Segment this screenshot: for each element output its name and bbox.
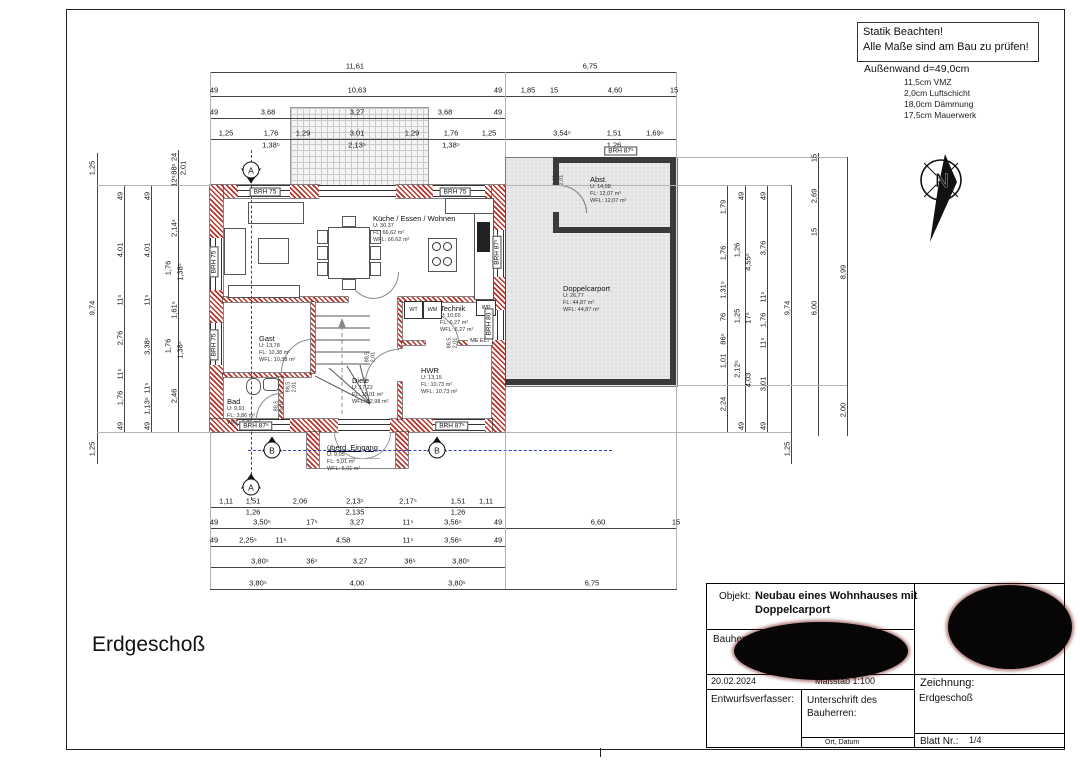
room-stat: WFL: 6,27 m² [440, 327, 473, 334]
dimension-label: 2,135 [346, 508, 365, 517]
dimension-label: 12⁵ [170, 175, 179, 186]
chair [317, 262, 328, 276]
dining-table [328, 227, 370, 279]
chair [317, 246, 328, 260]
dim-line [97, 153, 98, 464]
door-size-label: 1,012,01 [553, 175, 566, 186]
dimension-label: 49 [737, 422, 746, 430]
dimension-label: 1,25 [482, 129, 497, 138]
ext-line [505, 432, 506, 589]
room-label-überd-eingang: überd. EingangU: 9,05FL: 5,01 m²WFL: 5,0… [327, 443, 378, 473]
room-stat: U: 26,77 [563, 293, 610, 300]
cooktop-burner [432, 257, 441, 266]
entry-door-opening [338, 419, 390, 432]
dimension-label: 1,11 [479, 497, 493, 506]
dim-line [727, 185, 728, 432]
dimension-label: 49 [210, 518, 218, 527]
room-label-hwr: HWRU: 13,15FL: 10,73 m²WFL: 10,73 m² [421, 366, 457, 396]
dimension-label: 4,58 [336, 536, 351, 545]
tv-board [228, 285, 300, 298]
chair [342, 279, 356, 290]
dimension-label: 49 [737, 192, 746, 200]
tb-divider [801, 737, 914, 738]
chair [342, 216, 356, 227]
dimension-label: 3,76 [759, 241, 768, 256]
dimension-label: 1,76 [164, 339, 173, 354]
room-stat: FL: 10,38 m² [259, 350, 295, 357]
sofa-left [224, 228, 246, 275]
dimension-label: 11⁵ [403, 536, 414, 545]
dimension-label: 15 [810, 228, 819, 236]
dimension-label: 11⁵ [759, 292, 768, 303]
iwall-gast-bad [223, 373, 311, 377]
dimension-label: 1,29 [405, 129, 420, 138]
wc [246, 378, 261, 395]
dimension-label: 1,51 [607, 129, 622, 138]
dimension-label: 2,25⁵ [239, 536, 257, 545]
dimension-label: 2,01 [179, 161, 188, 176]
dimension-label: 10,63 [348, 86, 367, 95]
dimension-label: 86⁵ [719, 333, 728, 344]
dimension-label: 2,13⁵ [348, 141, 366, 150]
ext-line [676, 157, 847, 158]
tb-divider [801, 689, 802, 747]
dimension-label: 15 [550, 86, 558, 95]
dimension-label: 49 [759, 192, 768, 200]
dimension-label: 4,03 [744, 373, 753, 388]
section-marker-b: B [429, 442, 446, 459]
room-name: Küche / Essen / Wohnen [373, 214, 455, 223]
iwall-diele-hwr-b [398, 382, 402, 419]
chair [317, 230, 328, 244]
dimension-label: 3,50⁵ [253, 518, 271, 527]
dimension-label: 2,12⁵ [733, 360, 742, 378]
dimension-label: 1,26 [733, 243, 742, 258]
dim-line [210, 72, 677, 73]
carport-wall-bottom [505, 379, 676, 385]
sink [263, 378, 279, 391]
dimension-label: 1,61⁵ [170, 301, 179, 319]
dimension-label: 4,55⁵ [744, 253, 753, 271]
dimension-label: 6,75 [583, 62, 598, 71]
ext-line [676, 385, 677, 589]
room-stat: WFL: 5,01 m² [327, 466, 378, 473]
room-name: überd. Eingang [327, 443, 378, 452]
dimension-label: 1,25 [88, 442, 97, 457]
room-name: Diele [352, 376, 388, 385]
room-stat: WFL: 66,62 m² [373, 237, 455, 244]
dimension-label: 8,99 [839, 265, 848, 280]
date-value: 20.02.2024 [711, 676, 756, 686]
brh-label: BRH 75 [210, 330, 219, 361]
dimension-label: 4,01 [143, 243, 152, 258]
dimension-label: 15 [672, 518, 680, 527]
dimension-label: 3,56⁵ [444, 536, 462, 545]
section-marker-a: A [243, 479, 260, 496]
room-label-abst-: Abst.U: 14,08FL: 12,07 m²WFL: 12,07 m² [590, 175, 626, 205]
room-stat: FL: 5,01 m² [327, 459, 378, 466]
brh-label: BRH 75 [210, 247, 219, 278]
dimension-label: 6,75 [585, 579, 600, 588]
dimension-label: 11⁵ [116, 369, 125, 380]
dimension-label: 6,60 [591, 518, 606, 527]
room-stat: FL: 44,87 m² [563, 300, 610, 307]
room-name: HWR [421, 366, 457, 375]
dimension-label: 49 [759, 422, 768, 430]
room-stat: U: 10,65 [440, 313, 473, 320]
entwurfsverfasser-label: Entwurfsverfasser: [711, 694, 794, 705]
dimension-label: 49 [116, 422, 125, 430]
dimension-label: 1,38⁵ [442, 141, 460, 150]
fixture-label-wt: WT [404, 301, 423, 319]
dimension-label: 15 [670, 86, 678, 95]
room-stat: FL: 3,86 m² [227, 413, 260, 420]
ext-line [505, 432, 791, 433]
dimension-label: 1,51 [451, 497, 466, 506]
section-marker-a: A [243, 162, 260, 179]
dimension-label: 24 [170, 153, 179, 161]
dimension-label: 1,29 [296, 129, 311, 138]
dimension-label: 11⁵ [759, 338, 768, 349]
tb-divider [914, 733, 1064, 734]
room-name: Doppelcarport [563, 284, 610, 293]
ort-datum-label: Ort, Datum [825, 739, 859, 746]
room-stat: WFL: 44,87 m² [563, 307, 610, 314]
room-stat: U: 30,37 [373, 223, 455, 230]
room-stat: WFL: 12,07 m² [590, 198, 626, 205]
room-stat: U: 9,91 [227, 406, 260, 413]
dim-line [767, 185, 768, 432]
dim-line [745, 185, 746, 432]
ext-line [97, 432, 210, 433]
dimension-label: 76 [719, 313, 728, 321]
brh-label: BRH 87⁵ [435, 422, 468, 431]
dim-line [210, 567, 505, 568]
dimension-label: 4,60 [608, 86, 623, 95]
ext-line [210, 432, 211, 589]
dimension-label: 1,38⁵ [262, 141, 280, 150]
abst-wall-bottom [553, 227, 676, 233]
dimension-label: 2,14⁵ [170, 219, 179, 237]
dim-line [210, 96, 677, 97]
dimension-label: 1,25 [219, 129, 234, 138]
dimension-label: 3,80⁵ [249, 579, 267, 588]
dimension-label: 1,01 [719, 354, 728, 369]
dim-line [210, 118, 505, 119]
dimension-label: 3,80⁵ [452, 557, 470, 566]
dimension-label: 3,54⁵ [553, 129, 571, 138]
tb-divider [707, 689, 914, 690]
dimension-label: 3,80⁵ [251, 557, 269, 566]
dimension-label: 2,46 [170, 389, 179, 404]
dimension-label: 36⁵ [404, 557, 415, 566]
dimension-label: 3,80⁵ [448, 579, 466, 588]
kitchen-appliance [477, 222, 490, 252]
room-stat: FL: 66,62 m² [373, 230, 455, 237]
zeichnung-value: Erdgeschoß [919, 693, 973, 704]
dimension-label: 49 [494, 108, 502, 117]
dimension-label: 11,61 [346, 62, 364, 71]
dimension-label: 49 [494, 536, 502, 545]
door-size-label: 88,52,01 [274, 401, 287, 412]
room-label-diele: DieleU: 17,22FL: 15,01 m²WFL: 12,98 m² [352, 376, 388, 406]
dim-line [210, 528, 677, 529]
dimension-label: 3,38⁵ [143, 337, 152, 355]
dimension-label: 1,26 [451, 508, 466, 517]
dimension-label: 1,76 [759, 313, 768, 328]
drawing-sheet: Statik Beachten! Alle Maße sind am Bau z… [0, 0, 1080, 763]
dimension-label: 15 [810, 154, 819, 162]
dimension-label: 1,25 [88, 161, 97, 176]
section-line-a [251, 150, 252, 500]
dimension-label: 3,27 [350, 108, 365, 117]
sofa-top [248, 202, 304, 224]
room-name: Abst. [590, 175, 626, 184]
dimension-label: 11⁵ [276, 536, 287, 545]
dimension-label: 49 [210, 536, 218, 545]
dimension-label: 17⁵ [306, 518, 317, 527]
floor-title: Erdgeschoß [92, 633, 205, 657]
dimension-label: 49 [494, 518, 502, 527]
iwall-technik-a [402, 341, 425, 345]
room-label-küche-essen-wohnen: Küche / Essen / WohnenU: 30,37FL: 66,62 … [373, 214, 455, 244]
door-size-label: 88,52,01 [447, 338, 460, 349]
brh-label: BRH 87⁵ [604, 147, 637, 156]
cooktop-burner [443, 257, 452, 266]
dim-line [791, 185, 792, 464]
dimension-label: 6,00 [810, 301, 819, 316]
dimension-label: 1,76 [444, 129, 459, 138]
dimension-label: 1,69⁵ [646, 129, 664, 138]
dimension-label: 3,56⁵ [444, 518, 462, 527]
dimension-label: 9,74 [88, 301, 97, 316]
brh-label: BRH 75 [440, 188, 471, 197]
redaction-ellipse-stamp [948, 585, 1072, 669]
room-stat: FL: 10,73 m² [421, 382, 457, 389]
objekt-label: Objekt: [719, 591, 751, 602]
brh-label: BRH 87⁵ [239, 422, 272, 431]
door-size-label: 88,52,01 [286, 382, 299, 393]
dimension-label: 1,31⁵ [719, 281, 728, 299]
unterschrift-label: Unterschrift des Bauherren: [807, 694, 907, 720]
dimension-label: 1,76 [164, 261, 173, 276]
dimension-label: 1,26 [246, 508, 261, 517]
dimension-label: 1,51 [246, 497, 261, 506]
wall-left [210, 185, 223, 432]
chair [370, 246, 381, 260]
tb-divider [707, 674, 1064, 675]
dim-line [847, 157, 848, 436]
redaction-ellipse-bauherr [734, 622, 908, 680]
dimension-label: 36⁵ [306, 557, 317, 566]
room-label-technik: TechnikU: 10,65FL: 6,27 m²WFL: 6,27 m² [440, 304, 473, 334]
dimension-label: 11⁵ [143, 383, 152, 394]
dimension-label: 3,01 [759, 377, 768, 392]
dimension-label: 1,85 [521, 86, 536, 95]
room-stat: FL: 15,01 m² [352, 392, 388, 399]
zeichnung-label: Zeichnung: [920, 677, 974, 689]
blatt-value: 1/4 [969, 735, 982, 745]
dimension-label: 4,00 [350, 579, 365, 588]
dimension-label: 11⁵ [143, 295, 152, 306]
room-stat: FL: 6,27 m² [440, 320, 473, 327]
dimension-label: 3,27 [350, 518, 365, 527]
dimension-label: 2,13⁵ [346, 497, 364, 506]
dimension-label: 1,11 [219, 497, 233, 506]
dimension-label: 2,06 [293, 497, 308, 506]
carport-wall-top [553, 157, 676, 163]
dimension-label: 49 [116, 192, 125, 200]
dimension-label: 4,01 [116, 243, 125, 258]
dimension-label: 2,76 [116, 331, 125, 346]
room-stat: WFL: 10,73 m² [421, 389, 457, 396]
dimension-label: 11⁵ [403, 518, 414, 527]
dimension-label: 1,13⁵ [143, 397, 152, 415]
blatt-label: Blatt Nr.: [920, 736, 958, 747]
room-stat: FL: 12,07 m² [590, 191, 626, 198]
dimension-label: 1,38⁵ [176, 341, 185, 359]
section-marker-b: B [264, 442, 281, 459]
dimension-label: 2,24 [719, 397, 728, 412]
dimension-label: 2,00 [839, 403, 848, 418]
room-name: Gast [259, 334, 295, 343]
dimension-label: 9,74 [783, 301, 792, 316]
objekt-value: Neubau eines Wohnhauses mit Doppelcarpor… [755, 590, 923, 618]
dimension-label: 1,76 [264, 129, 279, 138]
dimension-label: 3,01 [350, 129, 365, 138]
fixture-label-wm: WM [423, 301, 442, 319]
dimension-label: 11⁵ [116, 295, 125, 306]
ext-line [505, 185, 791, 186]
dim-line [210, 546, 505, 547]
dimension-label: 1,76 [719, 246, 728, 261]
room-label-gast: GastU: 13,78FL: 10,38 m²WFL: 10,38 m² [259, 334, 295, 364]
dimension-label: 49 [210, 108, 218, 117]
door-arc-living-right [373, 272, 399, 299]
dimension-label: 3,68 [261, 108, 276, 117]
carport-wall-right [670, 157, 676, 385]
brh-label: BRH 80 [485, 309, 494, 340]
dimension-label: 88⁵ [170, 163, 179, 174]
ext-line [97, 185, 210, 186]
room-stat: U: 13,15 [421, 375, 457, 382]
dimension-label: 49 [143, 422, 152, 430]
room-name: Bad [227, 397, 260, 406]
dimension-label: 17⁵ [744, 312, 753, 323]
door-size-label: 88,52,01 [365, 352, 378, 363]
dimension-label: 1,25 [733, 309, 742, 324]
brh-label: BRH 75 [250, 188, 281, 197]
dim-line [151, 185, 152, 432]
terrace-door [319, 185, 396, 198]
dimension-label: 49 [143, 192, 152, 200]
dimension-label: 3,27 [353, 557, 368, 566]
brh-label: BRH 87⁵ [493, 235, 502, 268]
dimension-label: 1,25 [783, 442, 792, 457]
room-label-doppelcarport: DoppelcarportU: 26,77FL: 44,87 m²WFL: 44… [563, 284, 610, 314]
dimension-label: 49 [210, 86, 218, 95]
coffee-table [258, 238, 289, 264]
room-stat: WFL: 10,38 m² [259, 357, 295, 364]
dimension-label: 1,79 [719, 200, 728, 215]
dimension-label: 2,17⁵ [399, 497, 417, 506]
room-stat: U: 14,08 [590, 184, 626, 191]
dimension-label: 1,76 [116, 391, 125, 406]
room-name: Technik [440, 304, 473, 313]
room-stat: U: 9,05 [327, 452, 378, 459]
room-stat: WFL: 12,98 m² [352, 399, 388, 406]
ext-line [505, 72, 506, 157]
room-stat: U: 17,22 [352, 385, 388, 392]
kitchen-counter-top [445, 198, 494, 214]
dimension-label: 49 [494, 86, 502, 95]
dim-line [210, 589, 677, 590]
dimension-label: 2,69 [810, 189, 819, 204]
dimension-label: 1,38⁵ [176, 263, 185, 281]
room-stat: U: 13,78 [259, 343, 295, 350]
chair [370, 262, 381, 276]
dimension-label: 3,68 [438, 108, 453, 117]
